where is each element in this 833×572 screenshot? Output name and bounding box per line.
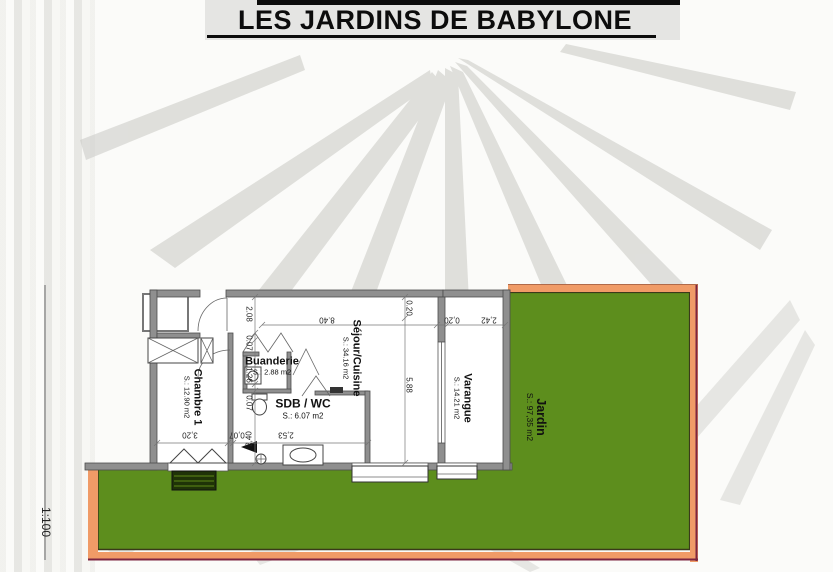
scale-label: 1:100 (38, 507, 52, 537)
floor-plan-linework (0, 0, 833, 572)
dim-label: 1.26 (244, 367, 253, 383)
dim-label: 3,20 (182, 430, 198, 439)
dim-label: 0.07 (244, 335, 253, 351)
room-label-chambre: Chambre 1 S.: 12.90 m2 (182, 369, 203, 426)
room-label-sdb: SDB / WC S.: 6.07 m2 (275, 398, 330, 421)
dim-label: 0,07 (229, 430, 245, 439)
room-name-jardin: Jardin (534, 393, 548, 441)
dim-label: 0,20 (444, 315, 460, 324)
dim-label: 0.07 (244, 395, 253, 411)
dim-label: 2,53 (278, 430, 294, 439)
room-area-chambre: S.: 12.90 m2 (182, 369, 191, 426)
room-name-sejour: Séjour/Cuisine (350, 319, 363, 396)
room-label-varangue: Varangue S.: 14.21 m2 (452, 373, 473, 423)
floor-plan-page: LES JARDINS DE BABYLONE (0, 0, 833, 572)
room-area-sejour: S.: 34.16 m2 (341, 319, 350, 396)
room-name-varangue: Varangue (461, 373, 474, 423)
dim-label: 2,42 (481, 315, 497, 324)
room-label-jardin: Jardin S.: 97,35 m2 (524, 393, 548, 441)
dim-label: 2.08 (244, 306, 253, 322)
dim-label: 2,40 (244, 431, 253, 447)
dim-label: 5.88 (404, 377, 413, 393)
dim-label: 8.40 (319, 315, 335, 324)
room-area-sdb: S.: 6.07 m2 (275, 411, 330, 420)
room-name-sdb: SDB / WC (275, 398, 330, 412)
room-label-sejour: Séjour/Cuisine S.: 34.16 m2 (341, 319, 362, 396)
room-area-jardin: S.: 97,35 m2 (524, 393, 534, 441)
room-name-buanderie: Buanderie (245, 355, 299, 368)
room-name-chambre: Chambre 1 (191, 369, 204, 426)
dim-label: 0.20 (404, 300, 413, 316)
room-area-varangue: S.: 14.21 m2 (452, 373, 461, 423)
